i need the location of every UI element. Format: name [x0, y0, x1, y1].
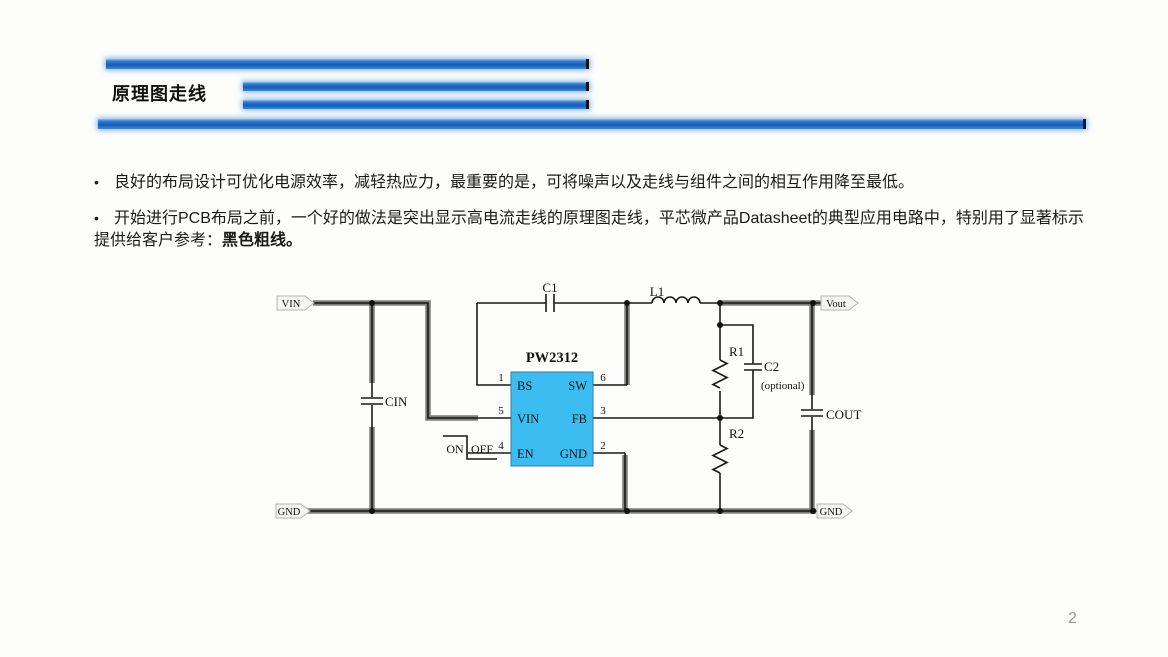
- bullet-marker: •: [94, 171, 114, 193]
- schematic-diagram: PW2312 BS VIN EN SW FB GND 1 5 4 6 3 2 C…: [256, 272, 884, 530]
- label-on: ON: [446, 442, 464, 456]
- bullet-1-text: 良好的布局设计可优化电源效率，减轻热应力，最重要的是，可将噪声以及走线与组件之间…: [114, 174, 914, 191]
- pin-label-en: EN: [517, 447, 534, 461]
- pin-number-5: 5: [498, 405, 504, 417]
- label-cin: CIN: [385, 394, 408, 409]
- pin-number-2: 2: [600, 440, 606, 452]
- pin-label-fb: FB: [572, 412, 587, 426]
- pin-number-6: 6: [600, 372, 606, 384]
- page-title: 原理图走线: [112, 80, 207, 106]
- ic-part-number: PW2312: [526, 350, 578, 366]
- pin-number-4: 4: [498, 440, 504, 452]
- label-c2-optional: (optional): [761, 380, 805, 392]
- svg-text:VIN: VIN: [282, 299, 301, 310]
- net-tag-gnd-right: GND: [817, 504, 852, 518]
- label-c2: C2: [764, 359, 779, 374]
- capacitor-c1: [546, 294, 554, 312]
- header-accent-bar-mid1: [243, 82, 589, 91]
- label-c1: C1: [542, 280, 557, 295]
- bullet-marker: •: [94, 207, 114, 229]
- page-number: 2: [1068, 610, 1077, 628]
- net-tag-vout: Vout: [821, 296, 858, 310]
- resistor-r2: [713, 445, 727, 473]
- net-tag-vin: VIN: [277, 296, 314, 310]
- svg-text:Vout: Vout: [826, 299, 846, 310]
- resistor-r1: [713, 360, 727, 388]
- bullet-item-2: •开始进行PCB布局之前，一个好的做法是突出显示高电流走线的原理图走线，平芯微产…: [94, 207, 1090, 252]
- capacitor-cout: [801, 410, 823, 416]
- label-cout: COUT: [826, 407, 861, 422]
- svg-text:GND: GND: [278, 507, 301, 518]
- pin-number-1: 1: [498, 372, 504, 384]
- pin-label-gnd: GND: [560, 447, 587, 461]
- label-off: OFF: [471, 442, 493, 456]
- label-r2: R2: [729, 426, 744, 441]
- header-accent-bar-mid2: [243, 100, 589, 109]
- bullet-item-1: •良好的布局设计可优化电源效率，减轻热应力，最重要的是，可将噪声以及走线与组件之…: [94, 171, 1090, 194]
- capacitor-c2: [744, 364, 762, 370]
- bullet-2-bold-text: 黑色粗线。: [222, 232, 302, 249]
- pin-label-bs: BS: [517, 379, 532, 393]
- header-accent-bar-long: [98, 119, 1086, 129]
- label-r1: R1: [729, 344, 744, 359]
- net-tag-gnd-left: GND: [276, 504, 310, 518]
- pin-number-3: 3: [600, 405, 606, 417]
- pin-label-sw: SW: [568, 379, 587, 393]
- header-accent-bar-top: [106, 59, 589, 69]
- pin-label-vin: VIN: [517, 412, 539, 426]
- label-l1: L1: [650, 284, 664, 299]
- svg-text:GND: GND: [820, 507, 843, 518]
- capacitor-cin: [361, 398, 383, 404]
- bullet-list: •良好的布局设计可优化电源效率，减轻热应力，最重要的是，可将噪声以及走线与组件之…: [94, 171, 1090, 265]
